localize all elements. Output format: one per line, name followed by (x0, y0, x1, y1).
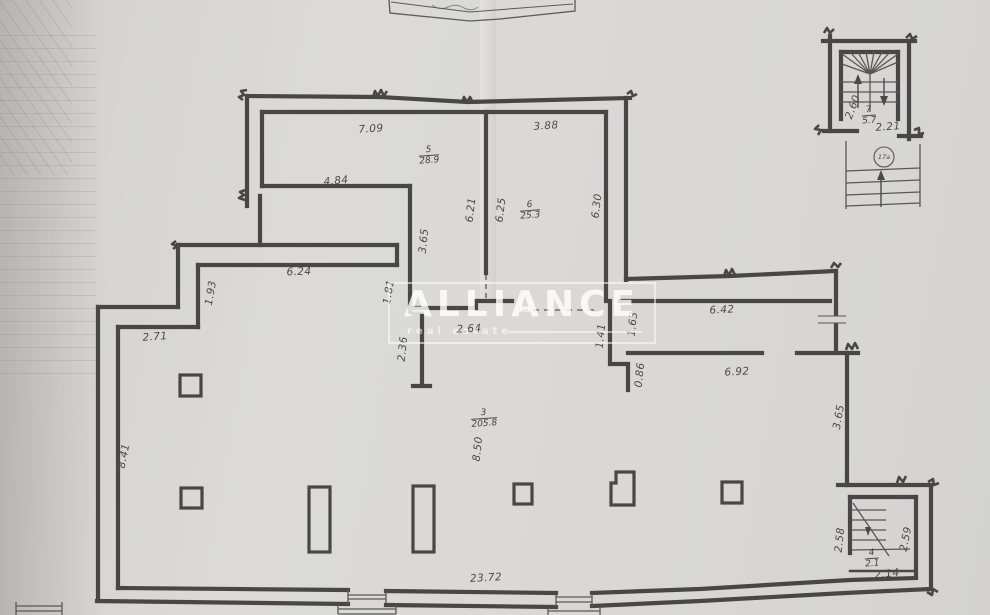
opening-ticks (818, 316, 846, 323)
watermark-subtitle: real estate (407, 326, 512, 337)
scanned-floorplan-page: 7.093.884.846.216.256.303.656.241.931.81… (0, 0, 990, 615)
dimension-label: 2.21 (875, 120, 901, 134)
dimension-label: 6.42 (709, 303, 735, 316)
entrance-steps-right (548, 593, 600, 615)
reference-circle-label: 17a (878, 153, 890, 161)
room-label: 3205.8 (470, 408, 497, 430)
title-box (389, 0, 575, 21)
watermark-title: ALLIANCE (404, 284, 640, 325)
dimension-label: 2.71 (142, 330, 168, 344)
columns (180, 375, 742, 552)
room-label: 75.7 (861, 106, 877, 127)
column-notched (611, 472, 634, 505)
room-label: 42.1 (864, 549, 880, 570)
room-area: 205.8 (471, 418, 497, 430)
room-label: 528.9 (418, 145, 439, 166)
column-square (722, 482, 742, 503)
column-square (514, 484, 532, 504)
watermark-rule (508, 331, 642, 333)
column-pier (413, 486, 434, 552)
dimension-label: 3.88 (533, 119, 559, 133)
illegible-handwriting (432, 5, 478, 10)
watermark: ALLIANCE real estate (388, 282, 656, 344)
dimension-label: 7.09 (358, 122, 384, 136)
room-label: 625.3 (519, 200, 540, 221)
column-square (181, 488, 202, 508)
steps-bottom-left-corner (16, 602, 62, 615)
stair-arrows (854, 74, 888, 536)
room-area: 28.9 (419, 155, 440, 166)
column-square (180, 375, 201, 396)
stair-arrow-room4 (865, 527, 871, 536)
stair-arrow-up-lower (877, 170, 885, 207)
room-area: 2.1 (865, 559, 880, 570)
dimension-label: 4.84 (323, 174, 349, 188)
dimension-label: 6.92 (724, 365, 750, 378)
dimension-label: 6.24 (286, 266, 311, 279)
column-pier (309, 487, 330, 552)
room-area: 5.7 (862, 116, 877, 127)
room-area: 25.3 (520, 210, 541, 221)
dimension-label: 23.72 (470, 571, 503, 585)
